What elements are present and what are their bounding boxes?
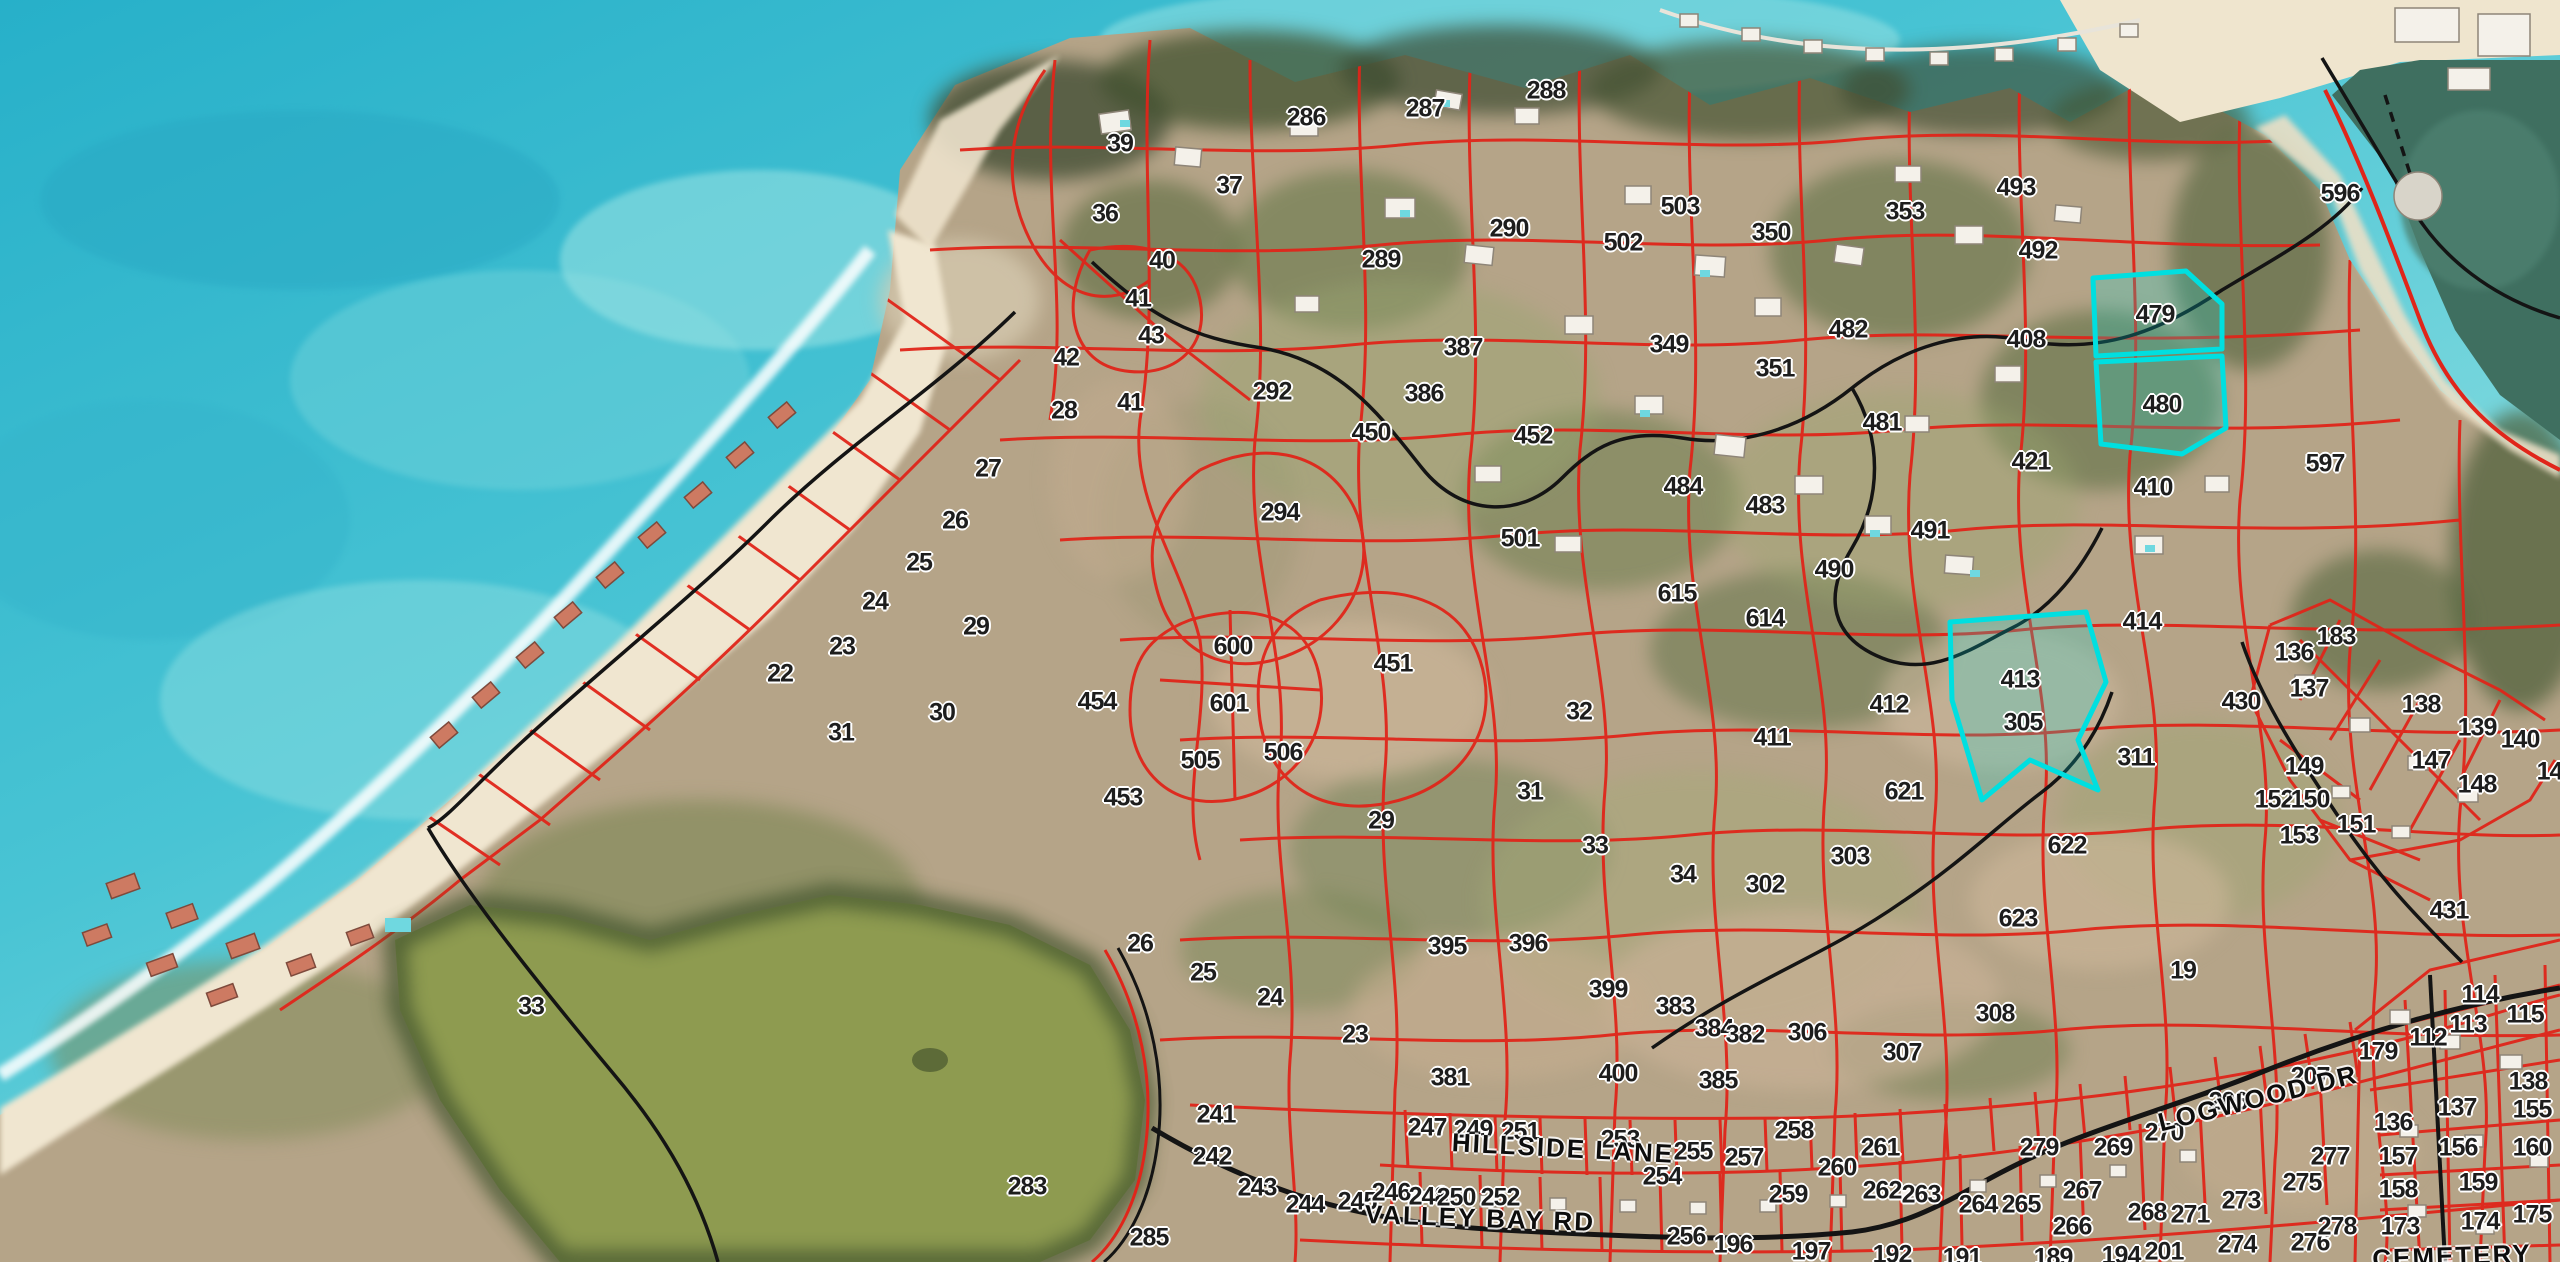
lagoon <box>395 895 1160 1262</box>
parcel-479-highlight[interactable] <box>2093 271 2222 356</box>
parcel-480-highlight[interactable] <box>2096 356 2226 454</box>
satellite-map[interactable]: 3936374041434241282922862872882892905035… <box>0 0 2560 1262</box>
map-imagery <box>0 0 2560 1262</box>
